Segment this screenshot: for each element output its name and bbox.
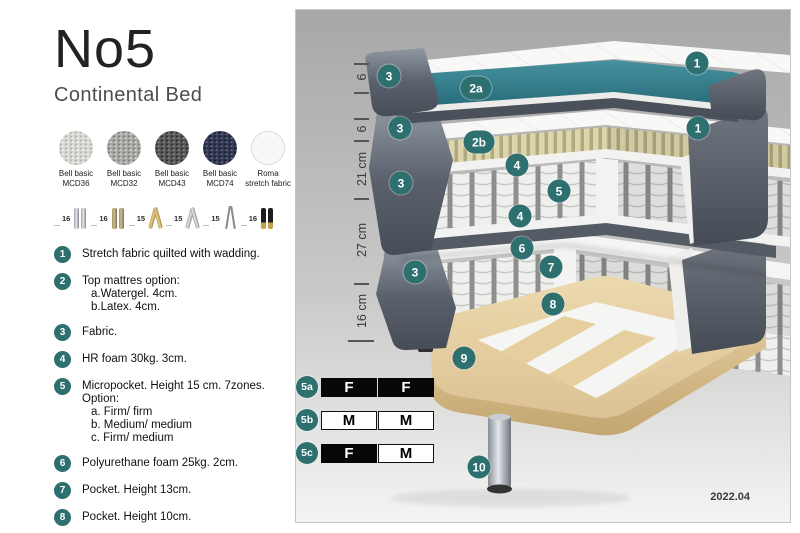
dimension-tick: [354, 118, 369, 120]
legend-item: 2 Top mattres option: a.Watergel. 4cm. b…: [54, 273, 295, 314]
fabric-code: MCD43: [158, 179, 185, 188]
callout-badge-fabric: 3: [390, 172, 413, 195]
dimension-label: 27 cm: [355, 223, 369, 257]
leg-options: 16 16 15 15 15: [54, 201, 295, 231]
leg-option: 15: [211, 207, 238, 231]
fabric-option: Romastretch fabric: [246, 131, 290, 188]
infographic-root: No5 Continental Bed Bell basicMCD36 Bell…: [0, 0, 800, 533]
spacer-dash: [129, 225, 135, 226]
callout-badge-watergel: 2a: [461, 77, 492, 100]
spacer-dash: [203, 225, 209, 226]
leg-height: 15: [174, 214, 182, 223]
legend-text: Pocket. Height 13cm.: [82, 484, 191, 496]
diagram-panel: 6 6 21 cm 27 cm 16 cm 3 2a 1 3 2b 1 4 5 …: [295, 9, 791, 523]
legend-number-badge: 4: [54, 351, 71, 368]
leg-height: 16: [99, 214, 107, 223]
dimension-label: 21 cm: [355, 152, 369, 186]
legend-number-badge: 7: [54, 482, 71, 499]
leg-height: 16: [249, 214, 257, 223]
legend-item: 3 Fabric.: [54, 324, 295, 341]
fabric-options: Bell basicMCD36 Bell basicMCD32 Bell bas…: [54, 131, 290, 188]
callout-badge-pocket-13: 7: [540, 256, 563, 279]
callout-badge-pu-foam: 6: [511, 237, 534, 260]
legend-text: Fabric.: [82, 326, 117, 338]
fabric-swatch-icon: [155, 131, 189, 165]
firmness-cell: F: [321, 444, 377, 463]
fabric-swatch-icon: [251, 131, 285, 165]
callout-badge-wood: 9: [453, 347, 476, 370]
legend-subtext: a.Watergel. 4cm.: [91, 288, 180, 301]
legend-number-badge: 2: [54, 273, 71, 290]
firmness-cell: M: [321, 411, 377, 430]
fabric-option: Bell basicMCD32: [102, 131, 146, 188]
legend-text: HR foam 30kg. 3cm.: [82, 353, 187, 365]
firmness-cell: M: [378, 444, 434, 463]
legend-number-badge: 1: [54, 246, 71, 263]
legend-item: 6 Polyurethane foam 25kg. 2cm.: [54, 455, 295, 472]
callout-badge-fabric: 3: [389, 117, 412, 140]
callout-badge-hr-foam: 4: [509, 205, 532, 228]
firmness-badge: 5c: [296, 442, 318, 464]
dimension-label: 6: [355, 74, 369, 81]
fabric-code: MCD74: [206, 179, 233, 188]
callout-badge-metal-leg: 10: [468, 456, 491, 479]
callout-badge-pocket-10: 8: [542, 293, 565, 316]
callout-badge-fabric: 3: [404, 261, 427, 284]
dimension-tick: [348, 340, 374, 342]
firmness-cell: F: [321, 378, 377, 397]
spacer-dash: [166, 225, 172, 226]
firmness-badge: 5a: [296, 376, 318, 398]
fabric-option: Bell basicMCD36: [54, 131, 98, 188]
firmness-row-5a: 5a F F: [296, 376, 434, 398]
leg-option: 16: [62, 207, 89, 231]
legend-item: 1 Stretch fabric quilted with wadding.: [54, 246, 295, 263]
firmness-cell: F: [378, 378, 434, 397]
fabric-swatch-icon: [203, 131, 237, 165]
legend-text: Pocket. Height 10cm.: [82, 511, 191, 523]
legend-number-badge: 5: [54, 378, 71, 395]
legend-item: 8 Pocket. Height 10cm.: [54, 509, 295, 526]
fabric-name: Bell basic: [59, 169, 93, 178]
legend-text: Micropocket. Height 15 cm. 7zones. Optio…: [82, 380, 265, 405]
gold-twist-legs-icon: [147, 207, 164, 231]
callout-badge-hr-foam: 4: [506, 154, 529, 177]
wood-cylinder-legs-icon: [110, 207, 127, 231]
legend-subtext: b. Medium/ medium: [91, 419, 295, 432]
legend-text: Stretch fabric quilted with wadding.: [82, 248, 260, 260]
fabric-option: Bell basicMCD74: [198, 131, 242, 188]
legend-subtext: c. Firm/ medium: [91, 432, 295, 445]
callout-badge-latex: 2b: [464, 131, 495, 154]
product-title: No5: [54, 24, 295, 75]
hairpin-legs-icon: [222, 207, 239, 231]
callout-badge-fabric: 3: [378, 65, 401, 88]
callout-badge-stretch-top: 1: [687, 117, 710, 140]
dimension-tick: [354, 140, 369, 142]
spacer-dash: [54, 225, 60, 226]
dimension-tick: [354, 63, 369, 65]
fabric-swatch-icon: [107, 131, 141, 165]
leg-option: 16: [99, 207, 126, 231]
firmness-row-5c: 5c F M: [296, 442, 434, 464]
legend-item: 7 Pocket. Height 13cm.: [54, 482, 295, 499]
leg-height: 16: [62, 214, 70, 223]
legend-number-badge: 8: [54, 509, 71, 526]
component-legend: 1 Stretch fabric quilted with wadding. 2…: [54, 246, 295, 533]
legend-text: Polyurethane foam 25kg. 2cm.: [82, 457, 238, 469]
dimension-label: 16 cm: [355, 294, 369, 328]
legend-panel: No5 Continental Bed Bell basicMCD36 Bell…: [0, 0, 295, 533]
legend-subtext: a. Firm/ firm: [91, 406, 295, 419]
callout-badge-micropocket: 5: [548, 180, 571, 203]
firmness-row-5b: 5b M M: [296, 409, 434, 431]
silver-twist-legs-icon: [184, 207, 201, 231]
fabric-name: Bell basic: [155, 169, 189, 178]
legend-text: Top mattres option:: [82, 275, 180, 287]
fabric-name: Bell basic: [107, 169, 141, 178]
fabric-swatch-icon: [59, 131, 93, 165]
firmness-cell: M: [378, 411, 434, 430]
legend-item: 4 HR foam 30kg. 3cm.: [54, 351, 295, 368]
leg-height: 15: [137, 214, 145, 223]
black-gold-legs-icon: [259, 207, 276, 231]
dimension-tick: [354, 92, 369, 94]
chrome-cylinder-legs-icon: [72, 207, 89, 231]
fabric-option: Bell basicMCD43: [150, 131, 194, 188]
version-label: 2022.04: [710, 491, 750, 503]
dimension-label: 6: [355, 126, 369, 133]
fabric-code: MCD36: [62, 179, 89, 188]
leg-option: 16: [249, 207, 276, 231]
firmness-badge: 5b: [296, 409, 318, 431]
callout-badge-stretch-top: 1: [686, 52, 709, 75]
product-subtitle: Continental Bed: [54, 84, 295, 107]
fabric-name: Roma: [257, 169, 278, 178]
fabric-name: Bell basic: [203, 169, 237, 178]
legend-item: 5 Micropocket. Height 15 cm. 7zones. Opt…: [54, 378, 295, 445]
leg-option: 15: [174, 207, 201, 231]
spacer-dash: [241, 225, 247, 226]
dimension-tick: [354, 198, 369, 200]
fabric-code: MCD32: [110, 179, 137, 188]
legend-subtext: b.Latex. 4cm.: [91, 301, 180, 314]
fabric-code: stretch fabric: [245, 179, 291, 188]
dimension-tick: [354, 283, 369, 285]
leg-option: 15: [137, 207, 164, 231]
leg-height: 15: [211, 214, 219, 223]
legend-number-badge: 6: [54, 455, 71, 472]
legend-number-badge: 3: [54, 324, 71, 341]
spacer-dash: [91, 225, 97, 226]
